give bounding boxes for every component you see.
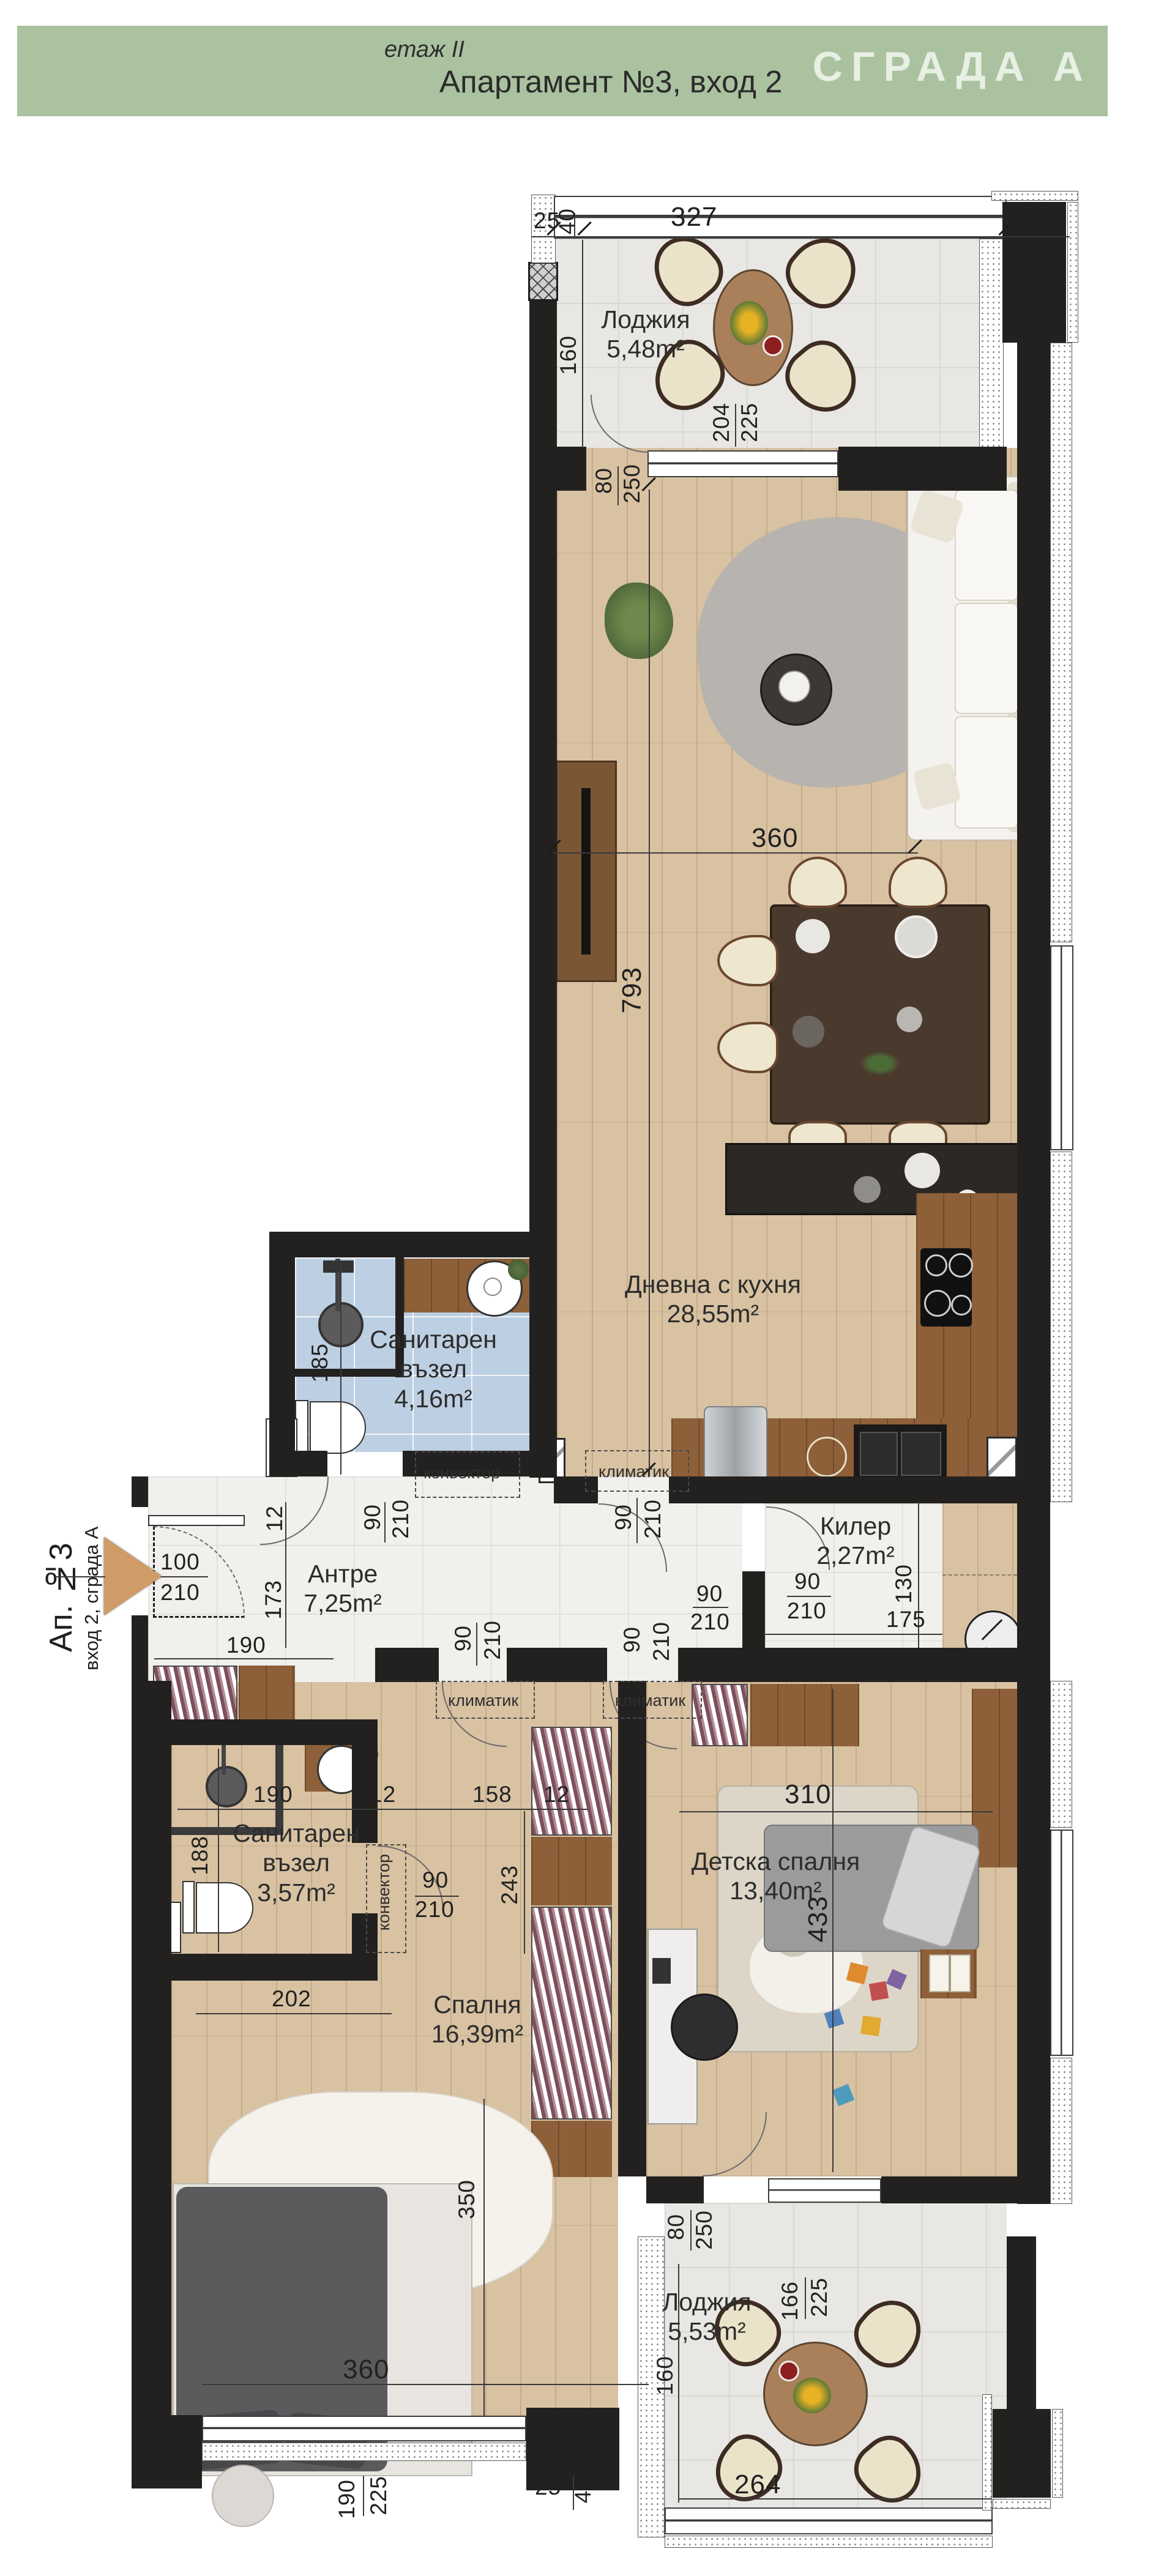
dim-line xyxy=(154,1576,208,1577)
dim-line xyxy=(483,2099,485,2416)
dim-line xyxy=(679,1811,993,1812)
sink-drain xyxy=(483,1278,502,1296)
room-name: Лоджия xyxy=(569,305,722,334)
kids-cabinet xyxy=(750,1684,859,1746)
insulation-strip xyxy=(982,2394,992,2511)
bowl xyxy=(793,1016,824,1048)
dim-label: 250 xyxy=(692,2210,717,2250)
insulation-strip xyxy=(665,2536,993,2548)
sofa-cushion xyxy=(955,603,1018,714)
sink-bowl xyxy=(860,1432,898,1476)
room-label-bath2: Санитарен възел 3,57m² xyxy=(219,1818,373,1907)
dim-label: 90 xyxy=(794,1569,821,1595)
dim-label: 190 xyxy=(226,1632,266,1658)
header-banner: етаж II Апартамент №3, вход 2 СГРАДА А xyxy=(17,26,1108,116)
open-book xyxy=(929,1954,971,1992)
dim-label: 202 xyxy=(272,1986,311,2012)
wall-segment xyxy=(1007,2236,1036,2409)
dim-label: 160 xyxy=(556,335,581,375)
room-area: 13,40m² xyxy=(658,1876,893,1905)
insulation-strip xyxy=(979,239,1004,448)
flower-bouquet xyxy=(730,301,768,345)
climatic-label: климатик xyxy=(448,1691,518,1710)
room-area: 4,16m² xyxy=(356,1384,510,1413)
dim-label: 433 xyxy=(803,1896,834,1942)
bowl xyxy=(854,1176,881,1203)
dim-label: 12 xyxy=(543,1782,570,1807)
room-area: 7,25m² xyxy=(275,1588,410,1618)
sofa-cushion xyxy=(955,490,1018,601)
dim-label: 210 xyxy=(415,1897,455,1923)
room-name: Лоджия xyxy=(630,2287,783,2317)
climatic-label: климатик xyxy=(615,1691,685,1710)
dim-label: 173 xyxy=(261,1580,286,1620)
wall-segment xyxy=(1017,1502,1050,1682)
room-area: 5,48m² xyxy=(569,334,722,363)
insulation-strip xyxy=(1050,1152,1072,1502)
room-name: Спалня xyxy=(401,1990,554,2019)
desk-chair xyxy=(671,1993,738,2061)
insulation-strip xyxy=(1050,343,1072,942)
pot xyxy=(807,1437,847,1477)
wall-segment xyxy=(171,1954,378,1981)
dim-line xyxy=(805,2277,806,2319)
room-name: Килер xyxy=(788,1511,923,1541)
burner xyxy=(925,1254,947,1276)
dim-line xyxy=(764,1634,942,1635)
burner xyxy=(951,1295,972,1316)
wall-segment xyxy=(1017,1681,1050,2204)
wall-segment xyxy=(838,447,1007,491)
dim-label: 166 xyxy=(777,2281,803,2321)
room-area: 5,53m² xyxy=(630,2317,783,2346)
flower-bouquet xyxy=(793,2378,831,2413)
room-area: 16,39m² xyxy=(401,2019,554,2049)
wall-segment xyxy=(132,1615,148,1682)
dim-label: 793 xyxy=(617,967,647,1013)
plate xyxy=(905,1153,940,1188)
antre-cabinet xyxy=(239,1666,295,1721)
wall-segment xyxy=(529,1257,557,1478)
insulation-strip xyxy=(1067,202,1078,343)
climatic-label: климатик xyxy=(599,1462,669,1481)
dim-label: 175 xyxy=(886,1607,926,1632)
dim-label: 243 xyxy=(497,1865,523,1905)
dim-line xyxy=(678,2498,991,2500)
toilet-tank xyxy=(182,1881,195,1934)
entrance-arrow-line xyxy=(55,1576,105,1577)
wall-segment xyxy=(132,1476,148,1507)
loggia-top-parapet xyxy=(554,196,1007,239)
dim-label: 310 xyxy=(785,1779,831,1810)
dim-label: 350 xyxy=(454,2180,480,2219)
insulation-strip xyxy=(991,191,1078,201)
tv xyxy=(581,788,591,955)
dim-line xyxy=(196,2013,392,2014)
wall-segment xyxy=(269,1232,295,1476)
page-title: Апартамент №3, вход 2 xyxy=(439,64,782,100)
dim-label: 12 xyxy=(370,1782,396,1807)
room-label-bedroom: Спалня 16,39m² xyxy=(401,1990,554,2049)
entry-door-leaf xyxy=(148,1515,245,1526)
dim-line xyxy=(340,1260,341,1475)
dim-line xyxy=(476,1623,477,1666)
table-greens xyxy=(860,1051,900,1076)
dim-label: 160 xyxy=(652,2356,678,2395)
dim-label: 360 xyxy=(343,2355,389,2385)
loggia-bottom-parapet xyxy=(665,2507,993,2534)
insulation-strip xyxy=(202,2443,526,2461)
plate xyxy=(796,919,830,953)
dim-label: 25 xyxy=(535,2474,561,2500)
dim-label: 90 xyxy=(450,1625,476,1651)
pouf xyxy=(212,2465,274,2527)
dim-label: 210 xyxy=(690,1609,730,1635)
dim-label: 130 xyxy=(891,1564,917,1604)
window-loggia-top xyxy=(647,450,838,477)
room-name: Антре xyxy=(275,1559,410,1588)
insulation-strip xyxy=(993,2499,1051,2509)
room-label-loggia-bottom: Лоджия 5,53m² xyxy=(630,2287,783,2347)
room-name: Дневна с кухня xyxy=(606,1270,820,1299)
dim-label: 80 xyxy=(591,467,617,494)
dim-line xyxy=(154,1658,334,1659)
dim-label: 90 xyxy=(422,1867,449,1893)
room-name: Санитарен възел xyxy=(219,1818,373,1878)
wall-segment xyxy=(554,447,586,491)
dim-line xyxy=(531,236,1070,237)
wall-segment xyxy=(646,2176,704,2203)
convector-label: конвектор xyxy=(375,1854,394,1930)
coffee-cup xyxy=(763,335,783,356)
dim-label: 225 xyxy=(737,403,763,442)
wall-segment xyxy=(678,1648,1017,1682)
room-label-living: Дневна с кухня 28,55m² xyxy=(606,1270,820,1329)
plant-small xyxy=(508,1259,529,1280)
window-bedroom-bottom xyxy=(202,2416,526,2441)
dim-label: 158 xyxy=(472,1782,512,1807)
shower-valve xyxy=(323,1260,354,1273)
wall-segment xyxy=(669,1476,1017,1503)
room-label-kiler: Килер 2,27m² xyxy=(788,1511,923,1571)
bedroom-cabinet xyxy=(531,1837,612,1905)
window-loggia-bottom xyxy=(768,2178,881,2203)
room-label-bath1: Санитарен възел 4,16m² xyxy=(356,1325,510,1413)
room-name: Детска спалня xyxy=(658,1847,893,1876)
dim-line xyxy=(787,1596,831,1597)
floor-plan-page: етаж II Апартамент №3, вход 2 СГРАДА А xyxy=(0,0,1175,2576)
coffee-cup xyxy=(778,2361,799,2381)
room-area: 3,57m² xyxy=(219,1878,373,1907)
window-kids-right xyxy=(1050,1830,1073,2056)
dim-line xyxy=(617,466,619,505)
room-label-kids: Детска спалня 13,40m² xyxy=(658,1847,893,1906)
bedroom-wardrobe xyxy=(531,1727,612,1836)
dim-label: 264 xyxy=(734,2470,781,2500)
convector-label: конвектор xyxy=(423,1464,500,1483)
burner xyxy=(949,1253,973,1278)
dim-label: 90 xyxy=(696,1581,723,1607)
wall-segment xyxy=(618,1681,646,2176)
dim-label: 327 xyxy=(671,202,717,233)
dim-line xyxy=(735,404,736,447)
room-name: Санитарен възел xyxy=(356,1325,510,1384)
dim-label: 188 xyxy=(187,1836,213,1875)
insulation-strip xyxy=(1052,2409,1063,2498)
dim-line xyxy=(524,1811,525,1954)
dim-line xyxy=(363,2476,364,2516)
floor-label: етаж II xyxy=(384,37,464,63)
desk-monitor xyxy=(652,1958,671,1984)
dim-label: 210 xyxy=(649,1621,674,1661)
wall-segment xyxy=(269,1451,327,1476)
toy-block xyxy=(869,1981,889,2001)
plate xyxy=(895,915,938,958)
entrance-apartment-label: Ап. №3 xyxy=(43,1511,80,1652)
dim-line xyxy=(693,1607,728,1608)
wall-segment xyxy=(507,1648,607,1682)
sink-bowl xyxy=(901,1432,941,1476)
wall-segment xyxy=(375,1648,439,1682)
room-label-loggia-top: Лоджия 5,48m² xyxy=(569,305,722,364)
dim-label: 40 xyxy=(570,2477,596,2503)
dim-label: 190 xyxy=(334,2479,360,2519)
dim-label: 225 xyxy=(807,2277,832,2317)
dim-label: 210 xyxy=(388,1499,414,1539)
dim-label: 90 xyxy=(611,1504,636,1530)
wall-column xyxy=(993,2409,1051,2498)
vase xyxy=(778,671,810,702)
dim-label: 100 xyxy=(160,1549,200,1575)
wall-segment xyxy=(881,2176,1017,2203)
dim-label: 12 xyxy=(262,1505,288,1532)
dim-label: 80 xyxy=(663,2214,689,2240)
dim-label: 210 xyxy=(640,1499,666,1539)
room-area: 28,55m² xyxy=(606,1299,820,1328)
wall-segment xyxy=(269,1232,557,1257)
entrance-arrow xyxy=(104,1537,162,1615)
dim-label: 190 xyxy=(253,1782,293,1807)
toy-block xyxy=(860,2016,881,2036)
burner xyxy=(924,1290,951,1317)
dim-line xyxy=(177,1809,587,1810)
dim-line xyxy=(636,1498,638,1543)
dim-label: 225 xyxy=(366,2476,392,2515)
building-label: СГРАДА А xyxy=(813,43,1092,91)
wall-segment xyxy=(529,300,557,1257)
dim-label: 360 xyxy=(752,823,798,854)
wall-segment xyxy=(132,1681,171,2416)
insulation-strip xyxy=(1050,1681,1072,1828)
wall-segment xyxy=(1017,343,1050,1502)
wall-segment xyxy=(171,1719,378,1745)
room-label-antre: Антре 7,25m² xyxy=(275,1559,410,1618)
dim-line xyxy=(554,852,918,854)
dim-label: 40 xyxy=(554,208,580,234)
tech-dashed-line xyxy=(942,1574,1017,1576)
wall-column-hatch xyxy=(528,262,558,301)
dim-label: 185 xyxy=(307,1343,333,1383)
sofa-cushion xyxy=(955,716,1018,828)
dim-label: 210 xyxy=(787,1598,827,1624)
shower-pipe xyxy=(222,1745,226,1774)
dim-label: 210 xyxy=(480,1620,505,1660)
dim-label: 90 xyxy=(360,1504,386,1530)
shower-head xyxy=(206,1766,247,1807)
entrance-sub-label: вход 2, сграда А xyxy=(81,1487,103,1670)
insulation-strip xyxy=(1050,2058,1072,2204)
wall-segment xyxy=(742,1571,765,1649)
wall-column xyxy=(132,2415,202,2489)
dim-line xyxy=(202,2384,649,2385)
dim-label: 204 xyxy=(709,403,734,442)
bowl xyxy=(897,1007,922,1032)
plant xyxy=(605,583,673,659)
window-living-right xyxy=(1050,945,1073,1150)
dim-label: 90 xyxy=(619,1626,645,1653)
dim-label: 250 xyxy=(619,464,645,504)
dim-label: 210 xyxy=(160,1580,200,1606)
